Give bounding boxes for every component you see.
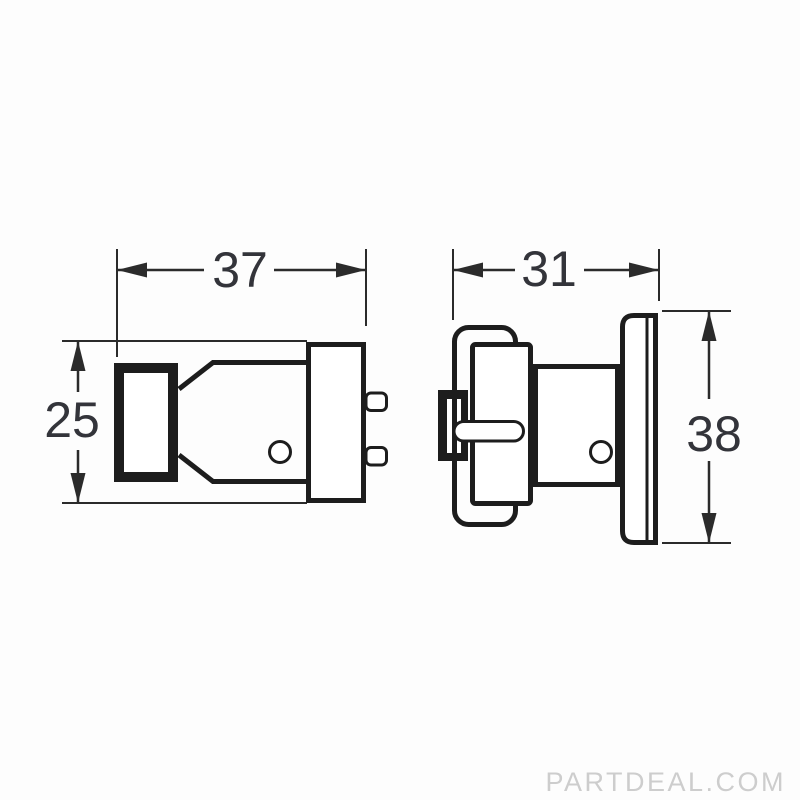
right-view-width-dimension: 31 <box>453 241 659 320</box>
neck-top-edge <box>179 363 307 390</box>
flange <box>309 345 364 501</box>
arrow-down-icon <box>702 513 717 543</box>
arrow-right-icon <box>336 263 366 278</box>
arrow-up-icon <box>71 341 86 371</box>
terminal-pin <box>366 393 387 411</box>
detent-hole <box>591 442 612 463</box>
right-view-height-dimension: 38 <box>662 311 742 543</box>
watermark-text: PARTDEAL.COM <box>545 767 786 797</box>
left-view-width-label: 37 <box>212 242 268 298</box>
terminal-pin <box>366 448 387 466</box>
right-view: 31 38 <box>438 241 742 543</box>
right-view-part-outline <box>438 315 656 543</box>
latch-slot <box>454 422 524 442</box>
detent-hole <box>270 442 291 463</box>
left-view-width-dimension: 37 <box>117 242 366 357</box>
technical-drawing: 37 25 <box>0 0 800 800</box>
left-view: 37 25 <box>44 242 386 503</box>
arrow-right-icon <box>629 263 659 278</box>
arrow-down-icon <box>71 473 86 503</box>
drawing-canvas: 37 25 <box>0 0 800 800</box>
right-view-height-label: 38 <box>686 406 742 462</box>
left-view-part-outline <box>119 345 387 501</box>
left-view-height-label: 25 <box>44 392 100 448</box>
arrow-left-icon <box>453 263 483 278</box>
right-view-width-label: 31 <box>521 241 577 297</box>
flange <box>623 316 656 543</box>
arrow-up-icon <box>702 311 717 341</box>
main-body <box>536 367 618 485</box>
arrow-left-icon <box>117 263 147 278</box>
end-cap <box>119 368 173 477</box>
